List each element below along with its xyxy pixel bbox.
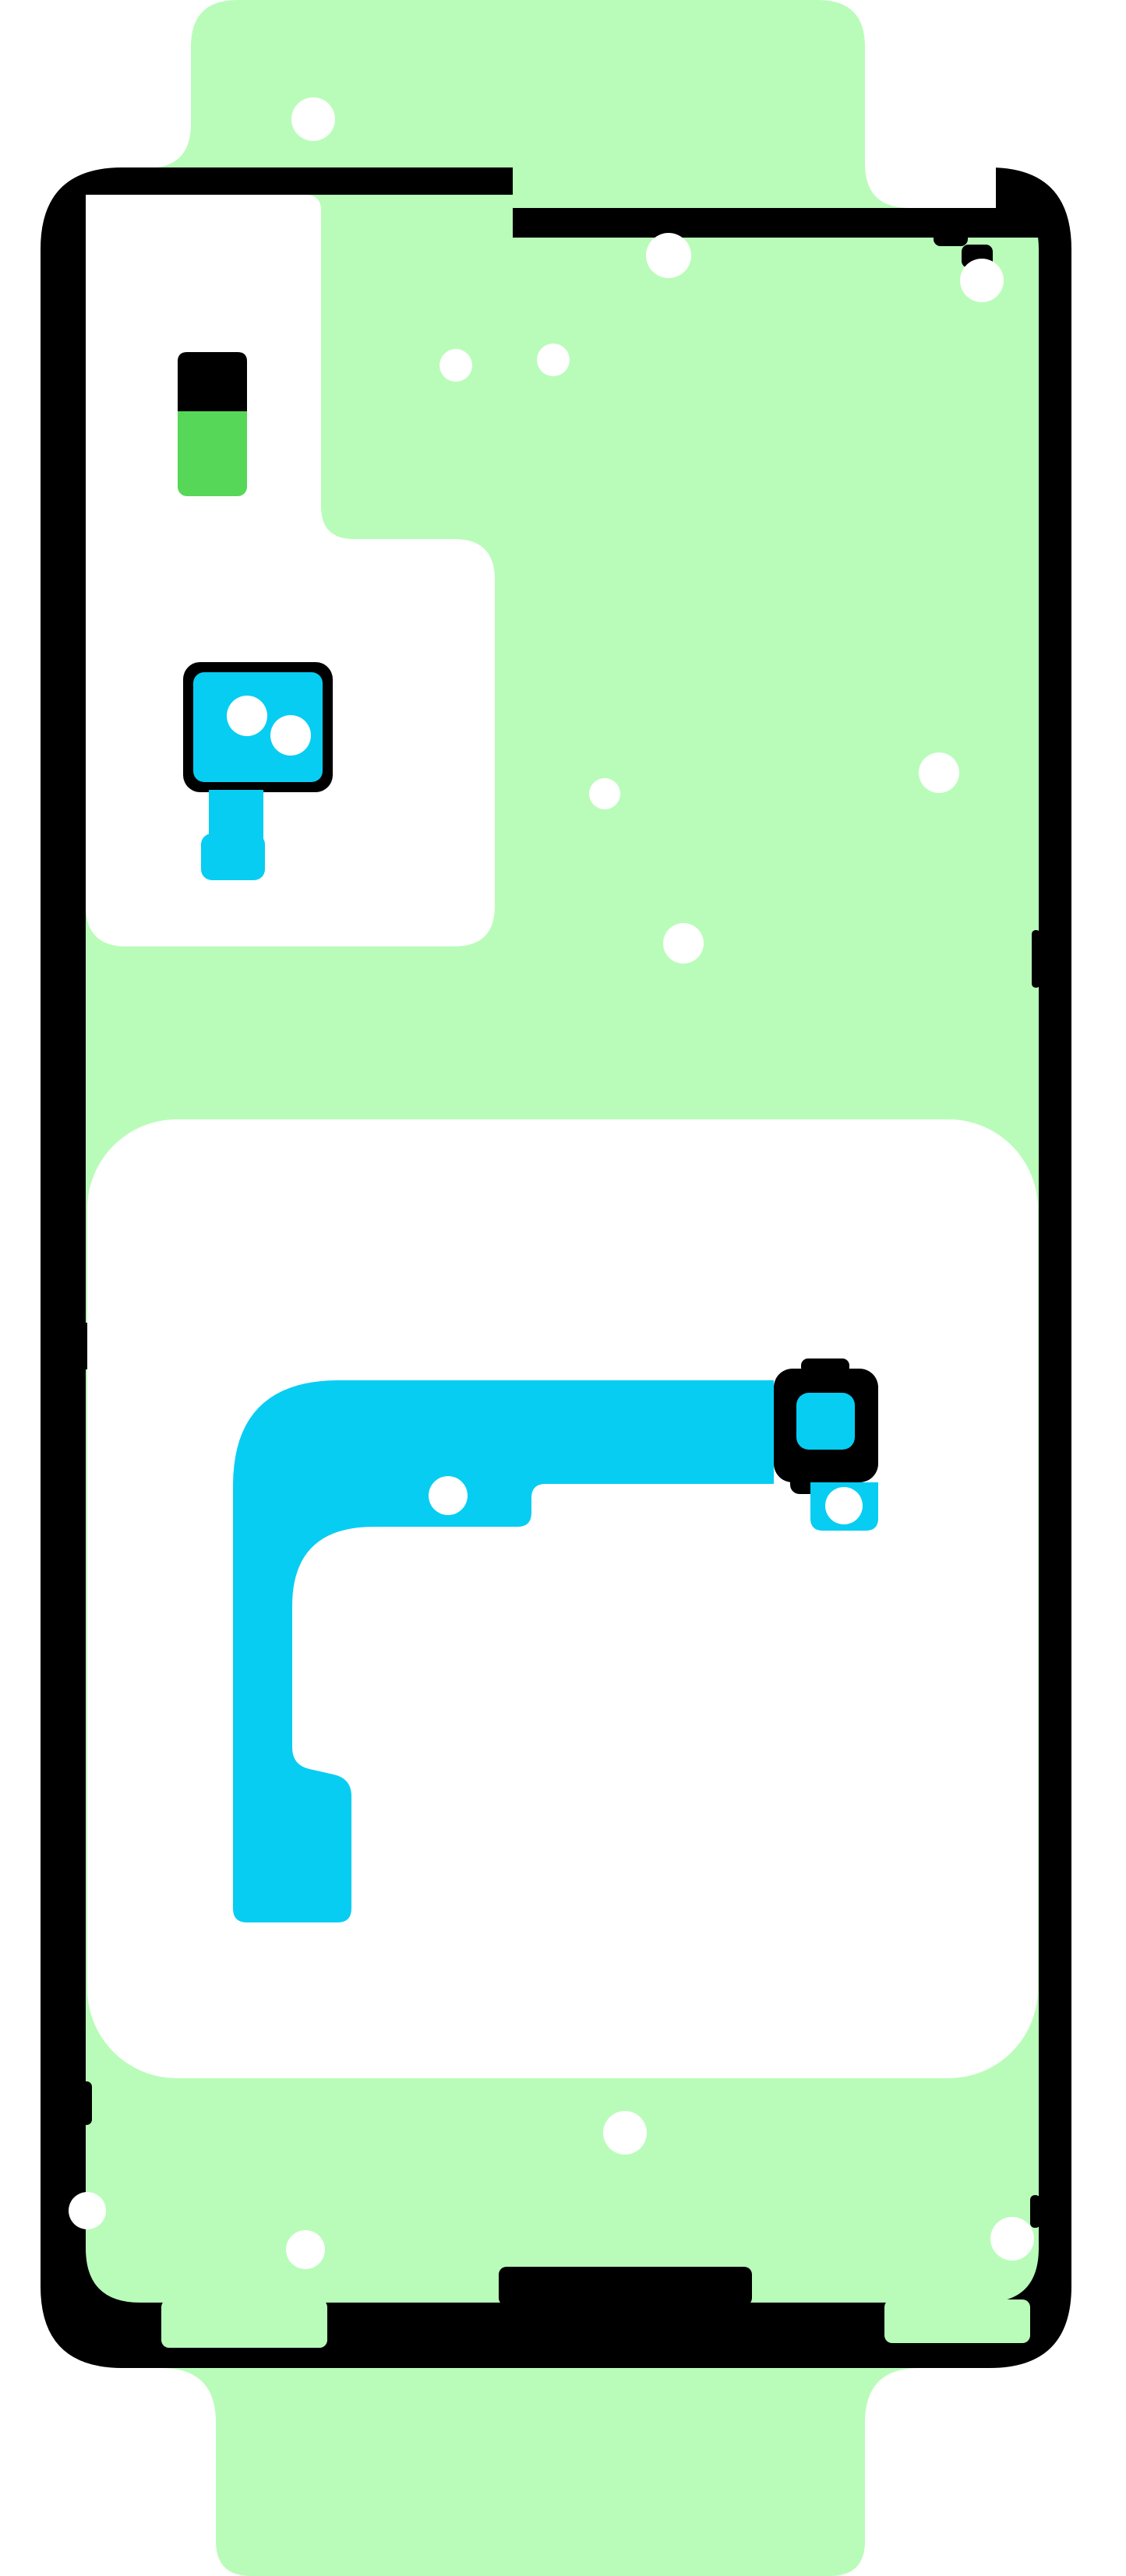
liner-hole-bottom-center <box>603 2111 647 2155</box>
liner-hole-right-mid <box>919 752 959 793</box>
frame-step-top-outer-white <box>863 164 996 208</box>
rear-cam-bezel-bump <box>801 1358 849 1374</box>
liner-hole-upper-pair-2 <box>537 344 570 376</box>
adhesive-diagram-canvas <box>0 0 1126 2576</box>
liner-hole-bottom-left-corner <box>69 2192 106 2229</box>
camera-tape-stem <box>209 790 263 840</box>
frame-step-top-outer-green <box>513 164 865 208</box>
battery-region-cutout <box>87 1119 1038 2078</box>
frame-corner-nub-1 <box>934 224 968 246</box>
liner-hole-top-center <box>646 233 691 278</box>
liner-hole-top-tab <box>291 97 335 141</box>
flash-strip-black-cap <box>178 352 247 411</box>
frame-notch-right-upper <box>1032 930 1040 988</box>
liner-hole-center-1 <box>589 778 620 809</box>
camera-lens-hole-2 <box>270 715 311 756</box>
camera-tape-foot <box>201 833 265 880</box>
liner-hole-bottom-right <box>990 2217 1034 2261</box>
bottom-liner-tab <box>216 2360 865 2576</box>
frame-step-bottom-black <box>499 2267 752 2306</box>
liner-hole-top-right-corner <box>960 259 1004 302</box>
liner-hole-upper-pair-1 <box>439 349 472 382</box>
liner-hole-center-2 <box>663 923 704 964</box>
frame-notch-left-lower <box>81 2081 92 2125</box>
camera-lens-hole-1 <box>227 696 267 736</box>
frame-notch-right-lower <box>1030 2195 1040 2228</box>
rear-cam-tab-hole <box>825 1487 863 1524</box>
frame-pocket-bottom-left <box>161 2299 327 2348</box>
battery-tape-hole <box>429 1476 468 1515</box>
adhesive-diagram <box>0 0 1126 2576</box>
rear-cam-bezel-cyan <box>796 1393 855 1450</box>
liner-hole-bottom-left <box>286 2230 325 2269</box>
frame-step-bottom-right <box>884 2299 1030 2343</box>
